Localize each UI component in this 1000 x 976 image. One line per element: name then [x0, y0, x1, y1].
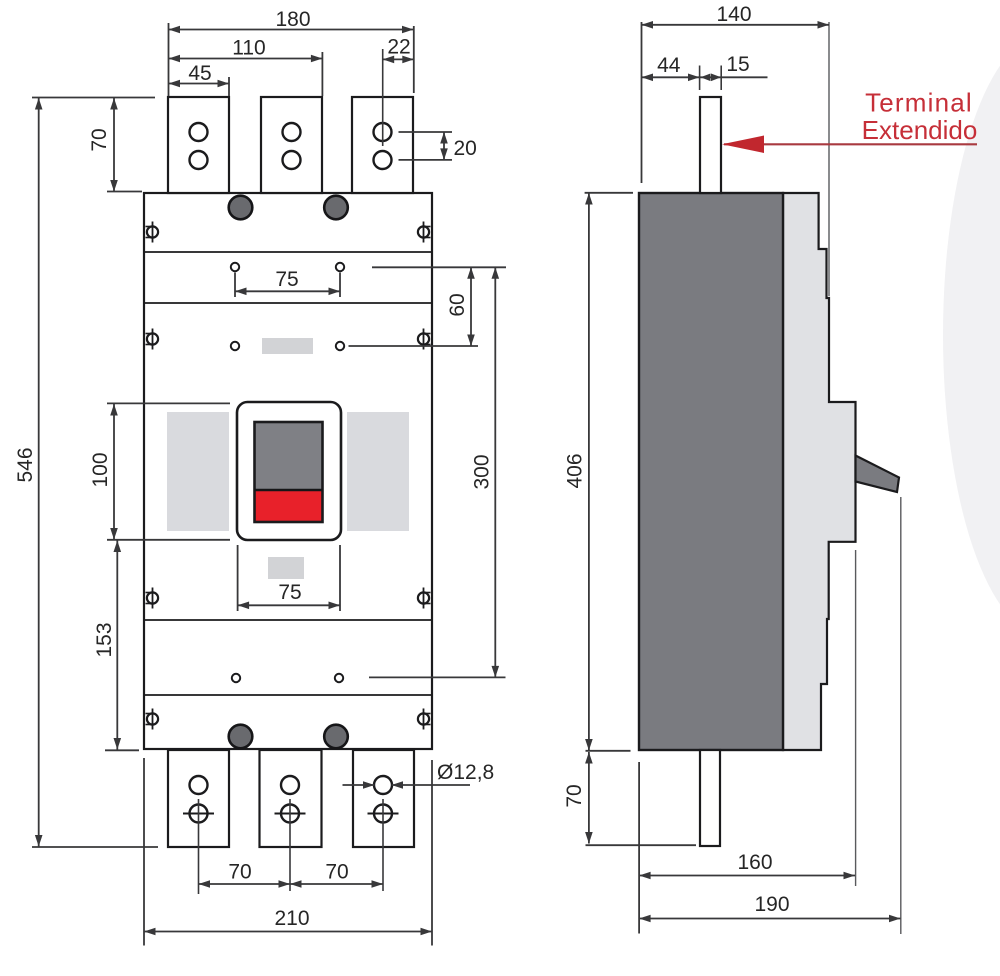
svg-text:70: 70 — [228, 861, 251, 884]
svg-text:153: 153 — [93, 622, 116, 657]
svg-text:190: 190 — [754, 893, 789, 916]
svg-text:110: 110 — [232, 37, 265, 60]
svg-text:Terminal: Terminal — [865, 88, 973, 118]
svg-text:100: 100 — [89, 452, 112, 487]
svg-text:180: 180 — [275, 8, 310, 31]
svg-text:70: 70 — [563, 784, 586, 807]
svg-text:44: 44 — [657, 54, 681, 77]
svg-text:Extendido: Extendido — [862, 115, 978, 145]
svg-text:140: 140 — [716, 3, 751, 26]
svg-text:22: 22 — [387, 36, 410, 59]
svg-text:15: 15 — [726, 53, 749, 76]
svg-text:70: 70 — [88, 128, 111, 151]
svg-text:210: 210 — [274, 907, 309, 930]
svg-text:75: 75 — [275, 268, 298, 291]
svg-text:406: 406 — [563, 453, 586, 488]
svg-text:70: 70 — [325, 861, 348, 884]
svg-text:60: 60 — [446, 293, 469, 316]
svg-text:75: 75 — [278, 581, 301, 604]
svg-text:20: 20 — [454, 137, 477, 160]
svg-text:300: 300 — [471, 454, 494, 489]
svg-text:160: 160 — [737, 851, 772, 874]
svg-text:45: 45 — [188, 62, 211, 85]
svg-text:546: 546 — [14, 447, 37, 482]
svg-text:Ø12,8: Ø12,8 — [437, 761, 494, 784]
